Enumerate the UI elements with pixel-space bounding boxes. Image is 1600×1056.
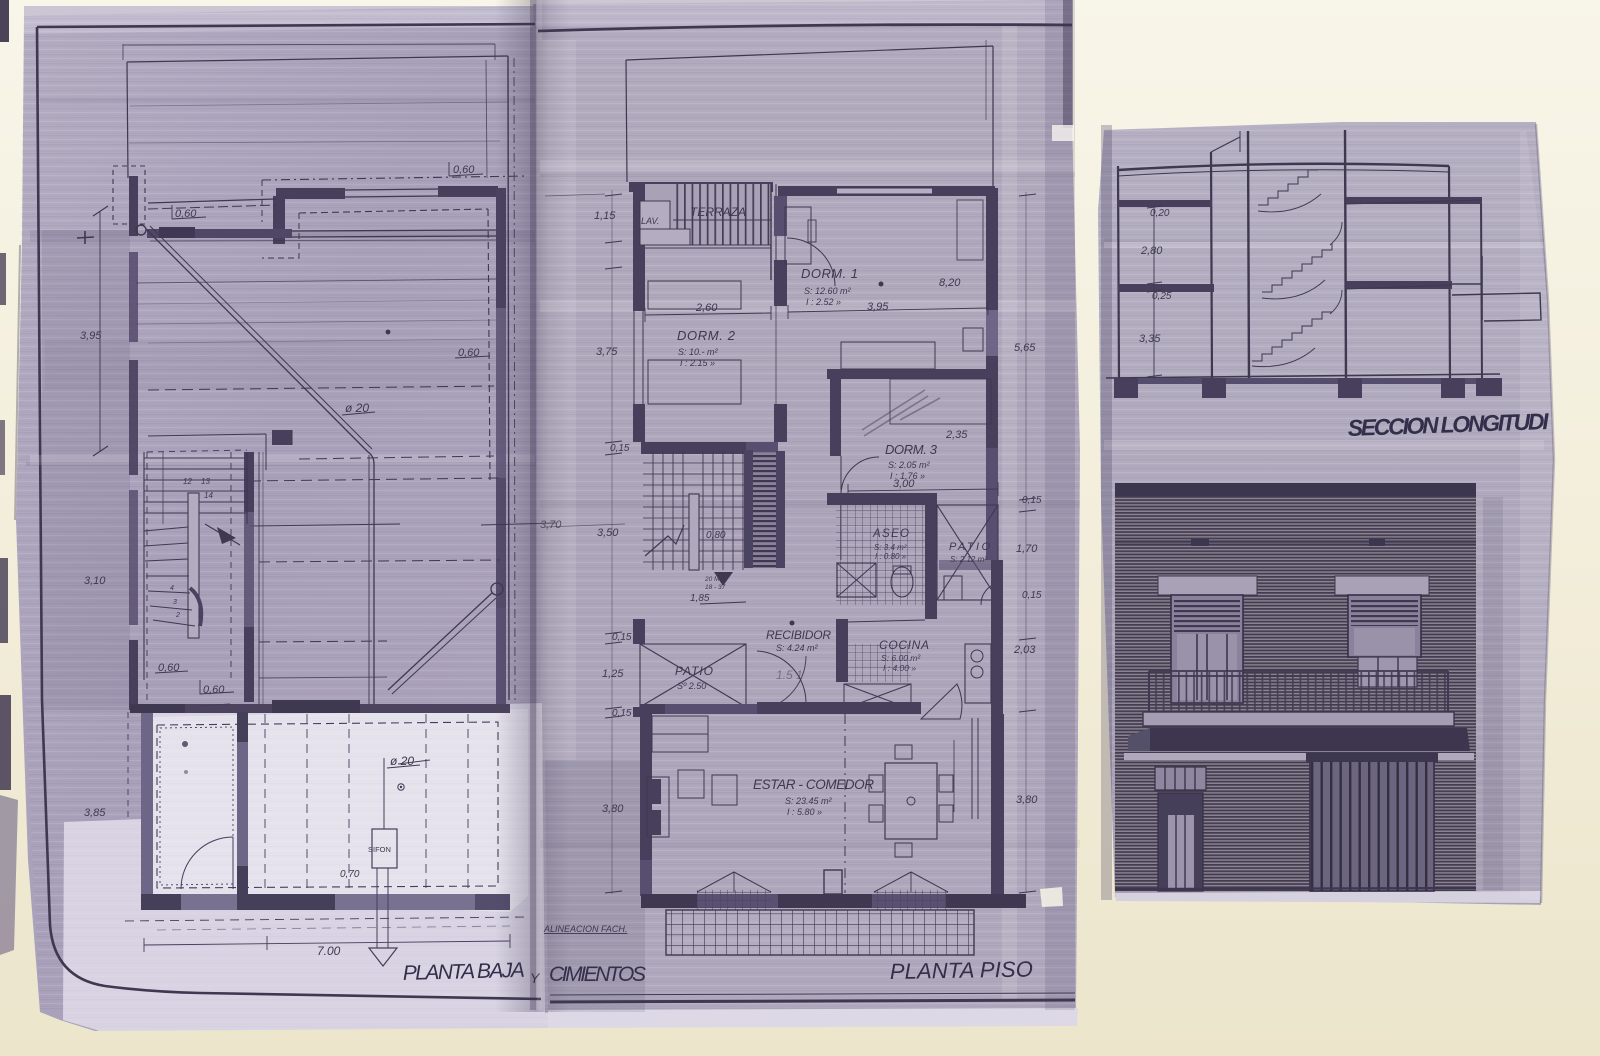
svg-text:0,15: 0,15 (612, 632, 632, 643)
svg-text:3,85: 3,85 (84, 807, 106, 819)
svg-text:ESTAR - COMEDOR: ESTAR - COMEDOR (753, 777, 874, 792)
svg-text:4: 4 (170, 585, 174, 592)
svg-text:I : 2.52 »: I : 2.52 » (806, 297, 841, 307)
svg-text:0,15: 0,15 (612, 708, 632, 719)
svg-text:S: 4.24 m²: S: 4.24 m² (776, 643, 819, 653)
svg-text:S: 12.60 m²: S: 12.60 m² (804, 286, 852, 296)
svg-text:18 - 37: 18 - 37 (705, 584, 726, 591)
svg-text:0,15: 0,15 (1022, 495, 1042, 506)
svg-text:0,60: 0,60 (203, 684, 225, 696)
svg-text:DORM. 2: DORM. 2 (677, 328, 736, 343)
svg-text:2: 2 (175, 612, 180, 619)
svg-text:3,80: 3,80 (602, 803, 624, 815)
svg-text:14: 14 (204, 491, 213, 500)
svg-text:20 MIX: 20 MIX (704, 576, 726, 583)
svg-text:1,25: 1,25 (602, 668, 624, 680)
svg-text:S: 23.45 m²: S: 23.45 m² (785, 796, 833, 806)
svg-text:PATIO: PATIO (949, 541, 990, 553)
svg-text:2,60: 2,60 (695, 302, 718, 314)
svg-text:1.5 1: 1.5 1 (776, 668, 803, 682)
svg-text:0,70: 0,70 (340, 869, 360, 880)
svg-text:3,95: 3,95 (80, 330, 102, 342)
svg-text:2,80: 2,80 (1140, 245, 1163, 257)
svg-text:1,15: 1,15 (594, 210, 616, 222)
svg-text:3,50: 3,50 (597, 527, 619, 539)
svg-text:S: 10.- m²: S: 10.- m² (678, 347, 719, 357)
svg-text:ALINEACION FACH.: ALINEACION FACH. (543, 924, 627, 934)
svg-text:PATIO: PATIO (675, 664, 713, 678)
svg-text:Sº 2.50: Sº 2.50 (677, 681, 706, 691)
svg-text:0,80: 0,80 (706, 530, 726, 541)
svg-text:TERRAZA: TERRAZA (690, 205, 746, 219)
svg-text:8,20: 8,20 (939, 277, 961, 289)
svg-text:DORM. 3: DORM. 3 (885, 442, 938, 457)
svg-text:I : 0.80 »: I : 0.80 » (875, 552, 907, 561)
svg-text:3: 3 (173, 599, 177, 606)
svg-text:3,35: 3,35 (1139, 333, 1161, 345)
svg-text:S: 2.05 m²: S: 2.05 m² (888, 460, 931, 470)
svg-text:RECIBIDOR: RECIBIDOR (766, 628, 831, 642)
svg-text:LAV.: LAV. (641, 216, 659, 226)
svg-text:7.00: 7.00 (317, 944, 341, 958)
svg-text:2,03: 2,03 (1013, 644, 1036, 656)
svg-text:3,95: 3,95 (867, 301, 889, 313)
svg-text:S: 6.00 m²: S: 6.00 m² (881, 653, 921, 663)
svg-text:3,80: 3,80 (1016, 794, 1038, 806)
svg-text:S: 3.4 m²: S: 3.4 m² (874, 543, 907, 552)
svg-text:DORM. 1: DORM. 1 (801, 266, 858, 281)
svg-text:12: 12 (183, 477, 192, 486)
svg-text:0,25: 0,25 (1152, 291, 1172, 302)
svg-text:1,85: 1,85 (690, 593, 710, 604)
svg-text:3,75: 3,75 (596, 346, 618, 358)
svg-text:S: 2.12 m²: S: 2.12 m² (950, 555, 987, 564)
svg-text:I : 2.15 »: I : 2.15 » (680, 358, 715, 368)
svg-text:5,65: 5,65 (1014, 342, 1036, 354)
svg-text:0,20: 0,20 (1150, 208, 1170, 219)
svg-text:0,15: 0,15 (610, 443, 630, 454)
svg-text:SIFON: SIFON (368, 845, 391, 854)
svg-text:PLANTA PISO: PLANTA PISO (890, 957, 1033, 984)
svg-text:3,00: 3,00 (893, 478, 915, 490)
svg-text:COCINA: COCINA (879, 638, 929, 652)
svg-text:1,70: 1,70 (1016, 543, 1038, 555)
svg-text:13: 13 (201, 477, 210, 486)
svg-text:I : 5.80 »: I : 5.80 » (787, 807, 822, 817)
svg-text:2,35: 2,35 (945, 429, 968, 441)
svg-text:ASEO: ASEO (872, 528, 909, 540)
svg-text:I : 4.00 »: I : 4.00 » (883, 663, 916, 673)
svg-text:3,10: 3,10 (84, 575, 106, 587)
svg-text:0,15: 0,15 (1022, 590, 1042, 601)
